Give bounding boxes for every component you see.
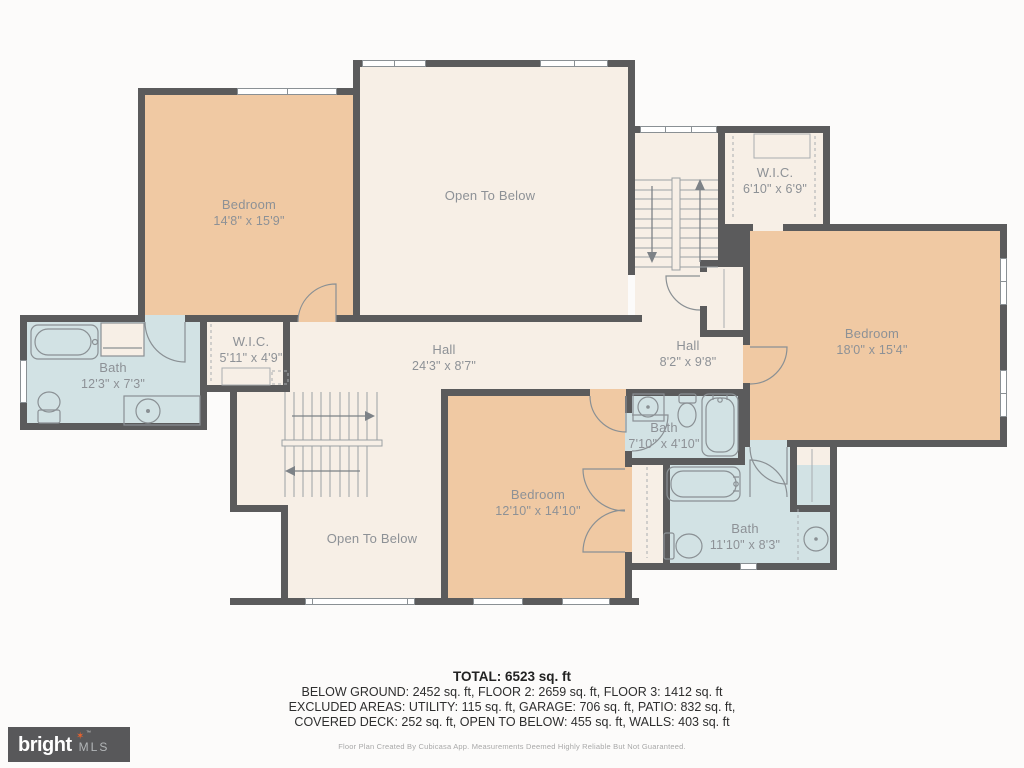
room-label: Hall	[676, 338, 699, 353]
bright-mls-logo: bright ✶ ™ MLS	[8, 727, 130, 762]
drain-symbol	[146, 409, 150, 413]
room-dimensions: 12'10" x 14'10"	[495, 504, 580, 518]
door-gap	[743, 345, 750, 383]
room-dimensions: 18'0" x 15'4"	[836, 343, 907, 357]
room-label: Bedroom	[222, 197, 276, 212]
room-dimensions: 7'10" x 4'10"	[628, 437, 699, 451]
room-dimensions: 12'3" x 7'3"	[81, 377, 145, 391]
door-gap	[298, 315, 336, 322]
floor-plan: Bedroom 14'8" x 15'9" Open To Below W.I.…	[0, 0, 1024, 640]
room-dimensions: 6'10" x 6'9"	[743, 182, 807, 196]
floor-areas: BELOW GROUND: 2452 sq. ft, FLOOR 2: 2659…	[0, 685, 1024, 700]
room-dimensions: 5'11" x 4'9"	[219, 351, 282, 365]
room-label: Open To Below	[445, 188, 536, 203]
room-label: Bath	[99, 360, 127, 375]
drain-symbol	[646, 405, 650, 409]
room-label: Bath	[731, 521, 759, 536]
door-gap	[590, 389, 626, 396]
room-dimensions: 24'3" x 8'7"	[412, 359, 476, 373]
room-open-to-below-bottom-lower	[288, 505, 441, 598]
stair-rail	[672, 178, 680, 270]
room-dimensions: 14'8" x 15'9"	[213, 214, 284, 228]
disclaimer-text: Floor Plan Created By Cubicasa App. Meas…	[0, 742, 1024, 751]
hall-opening	[635, 315, 743, 322]
room-dimensions: 11'10" x 8'3"	[710, 538, 780, 552]
door-gap	[145, 315, 185, 322]
door-gap	[750, 440, 787, 447]
room-label: Open To Below	[327, 531, 418, 546]
excluded-areas-continued: COVERED DECK: 252 sq. ft, OPEN TO BELOW:…	[0, 715, 1024, 730]
room-label: Bedroom	[511, 487, 565, 502]
door-gap	[625, 467, 632, 552]
room-label: W.I.C.	[757, 165, 794, 180]
logo-wordmark: bright	[18, 735, 72, 755]
logo-trademark: ™	[86, 730, 91, 736]
door-gap	[700, 272, 707, 306]
room-open-to-below-bottom-upper	[237, 392, 441, 505]
area-summary: TOTAL: 6523 sq. ft BELOW GROUND: 2452 sq…	[0, 669, 1024, 730]
door-gap	[753, 224, 783, 231]
total-area: TOTAL: 6523 sq. ft	[0, 669, 1024, 685]
shower-symbol	[101, 323, 144, 356]
room-label: W.I.C.	[233, 334, 270, 349]
stair-rail	[282, 440, 382, 446]
room-label: Bedroom	[845, 326, 899, 341]
room-label: Bath	[650, 420, 678, 435]
logo-star-icon: ✶	[76, 731, 84, 742]
drain-symbol	[814, 537, 818, 541]
excluded-areas: EXCLUDED AREAS: UTILITY: 115 sq. ft, GAR…	[0, 700, 1024, 715]
room-dimensions: 8'2" x 9'8"	[660, 355, 717, 369]
room-label: Hall	[432, 342, 455, 357]
